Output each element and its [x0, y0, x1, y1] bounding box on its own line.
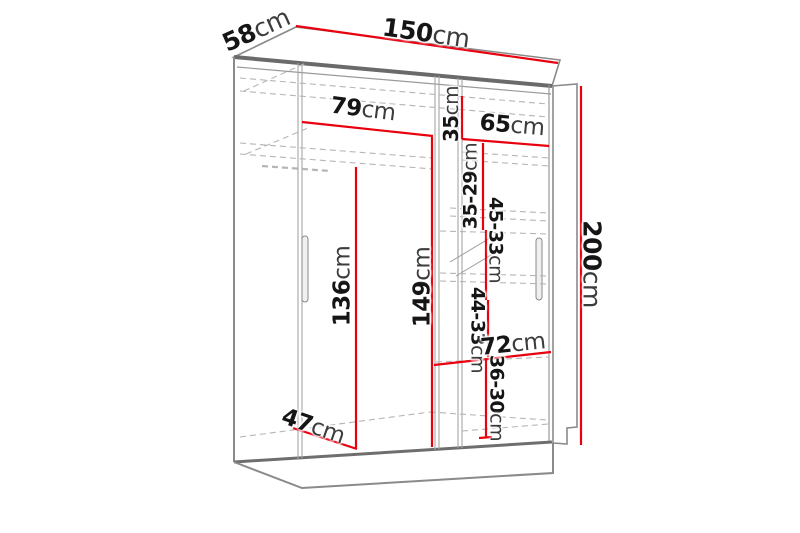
dim-label-height: 200cm — [580, 220, 605, 308]
wardrobe-line-art — [0, 0, 800, 533]
dim-unit-upper-left-width: cm — [360, 96, 397, 126]
bottom-front-edge — [234, 442, 552, 462]
dim-unit-upper-right-width: cm — [509, 112, 545, 141]
dim-unit-lower-right-width: cm — [510, 328, 547, 357]
dim-value-upper-left-width: 79 — [329, 93, 363, 123]
dim-unit-right-gap-2: cm — [485, 255, 507, 283]
dim-label-center-interior-height: 149cm — [412, 247, 435, 328]
dim-label-right-gap-4: 36-30cm — [487, 355, 506, 441]
dim-value-upper-right-width: 65 — [478, 110, 511, 139]
dim-label-left-hanging-height: 136cm — [332, 246, 355, 327]
dimension-lines — [293, 26, 581, 449]
dim-value-left-hanging-height: 136 — [330, 280, 356, 327]
left-door-handle — [302, 236, 308, 302]
dim-value-right-gap-4: 36-30 — [486, 355, 508, 413]
dim-unit-width: cm — [431, 20, 472, 54]
dim-value-top-right-height: 35 — [439, 115, 463, 142]
dim-value-center-interior-height: 149 — [410, 281, 436, 328]
dim-value-right-gap-1: 35-29 — [460, 171, 482, 229]
wardrobe-right-side — [552, 84, 577, 444]
dim-unit-left-hanging-height: cm — [330, 246, 356, 280]
dim-label-right-gap-2: 45-33cm — [486, 197, 505, 283]
dim-unit-height: cm — [578, 271, 607, 308]
dim-unit-right-gap-4: cm — [486, 413, 508, 441]
right-door-handle — [536, 238, 542, 300]
dim-label-right-gap-1: 35-29cm — [462, 143, 481, 229]
dim-unit-center-interior-height: cm — [410, 247, 436, 281]
plinth-outline — [234, 443, 553, 488]
wardrobe-dimension-diagram: 58cm 150cm 200cm 79cm 35cm 65cm 35-29cm … — [0, 0, 800, 533]
dim-value-height: 200 — [578, 220, 607, 271]
dim-value-right-gap-2: 45-33 — [485, 197, 507, 255]
dim-label-upper-right-width: 65cm — [479, 112, 546, 141]
dim-value-lower-right-width: 72 — [479, 332, 513, 361]
dim-unit-right-gap-1: cm — [460, 143, 482, 171]
dim-label-top-right-height: 35cm — [441, 86, 461, 142]
dim-line-upper-left-width — [302, 122, 433, 136]
dim-unit-top-right-height: cm — [439, 86, 463, 115]
